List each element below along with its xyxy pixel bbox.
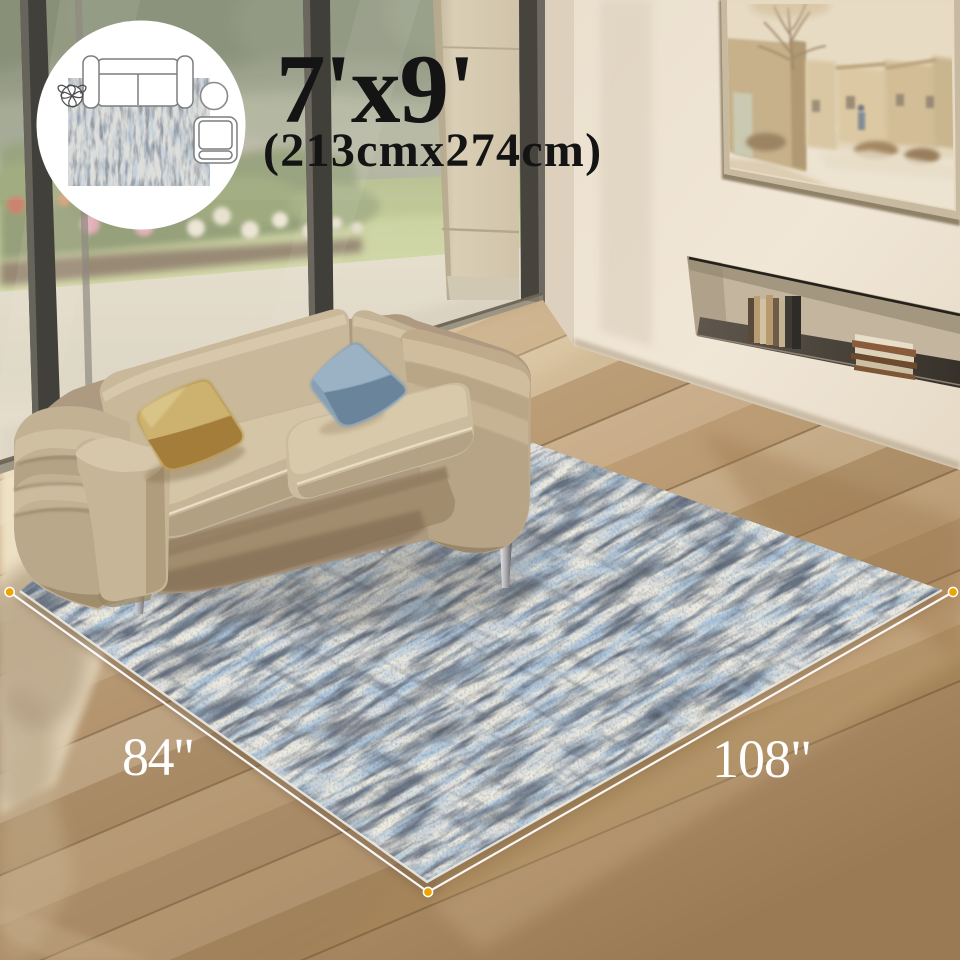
svg-text:84": 84" [122, 727, 194, 787]
svg-text:108": 108" [712, 729, 811, 789]
svg-text:(213cmx274cm): (213cmx274cm) [263, 124, 602, 177]
